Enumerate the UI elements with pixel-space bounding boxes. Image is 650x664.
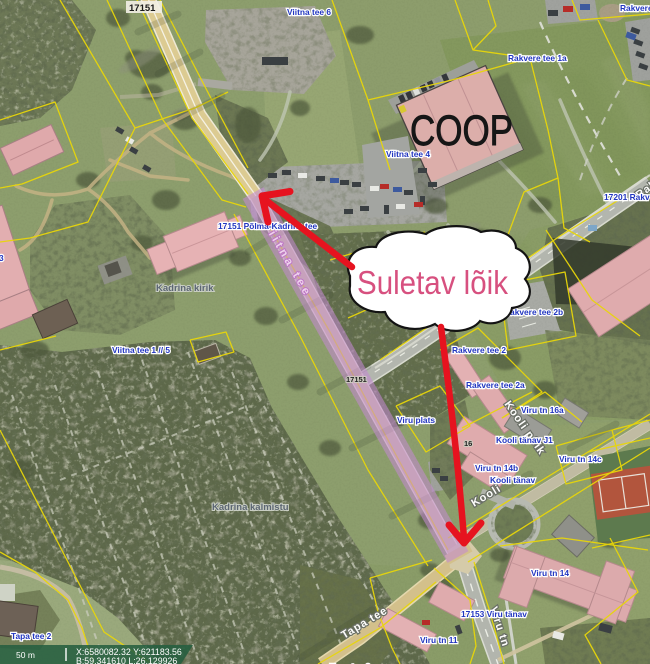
svg-text:Viru tn 16a: Viru tn 16a	[521, 405, 564, 415]
svg-text:Suletav lõik: Suletav lõik	[357, 264, 508, 301]
svg-text:Rakvere: Rakvere	[620, 3, 650, 13]
svg-text:Tapa tee 2: Tapa tee 2	[11, 631, 52, 641]
svg-text:17153 Viru tänav: 17153 Viru tänav	[461, 609, 527, 619]
svg-text:B:59.341610 L:26.129926: B:59.341610 L:26.129926	[76, 656, 177, 664]
svg-text:Viitna tee 1 // 5: Viitna tee 1 // 5	[112, 345, 170, 355]
svg-text:17151: 17151	[129, 3, 156, 14]
svg-text:COOP: COOP	[410, 107, 513, 155]
svg-text:Viru plats: Viru plats	[397, 415, 435, 425]
svg-text:16: 16	[464, 439, 472, 448]
svg-text:Viru tn 11: Viru tn 11	[420, 635, 458, 645]
svg-text:Viru tn 14c: Viru tn 14c	[559, 454, 602, 464]
svg-text:Rakvere tee 2a: Rakvere tee 2a	[466, 380, 525, 390]
svg-text:Rakvere tee 2: Rakvere tee 2	[452, 345, 506, 355]
svg-text:Viitna tee 6: Viitna tee 6	[287, 7, 331, 17]
svg-text:50 m: 50 m	[16, 650, 35, 660]
svg-text:Kadrina kalmistu: Kadrina kalmistu	[212, 502, 289, 513]
svg-text:Viru tn 14: Viru tn 14	[531, 568, 569, 578]
svg-text:Kooli tänav J1: Kooli tänav J1	[496, 435, 553, 445]
svg-text:17201 Rakv: 17201 Rakv	[604, 192, 650, 202]
svg-text:17151: 17151	[346, 375, 367, 384]
svg-text:Rakvere tee 1a: Rakvere tee 1a	[508, 53, 567, 63]
svg-text:Viitna tee 4: Viitna tee 4	[386, 149, 430, 159]
svg-text:Kadrina kirik: Kadrina kirik	[156, 283, 214, 294]
svg-text:Viru tn 14b: Viru tn 14b	[475, 463, 518, 473]
svg-text:Kooli tänav: Kooli tänav	[490, 475, 535, 485]
svg-text:e 3: e 3	[0, 253, 4, 263]
